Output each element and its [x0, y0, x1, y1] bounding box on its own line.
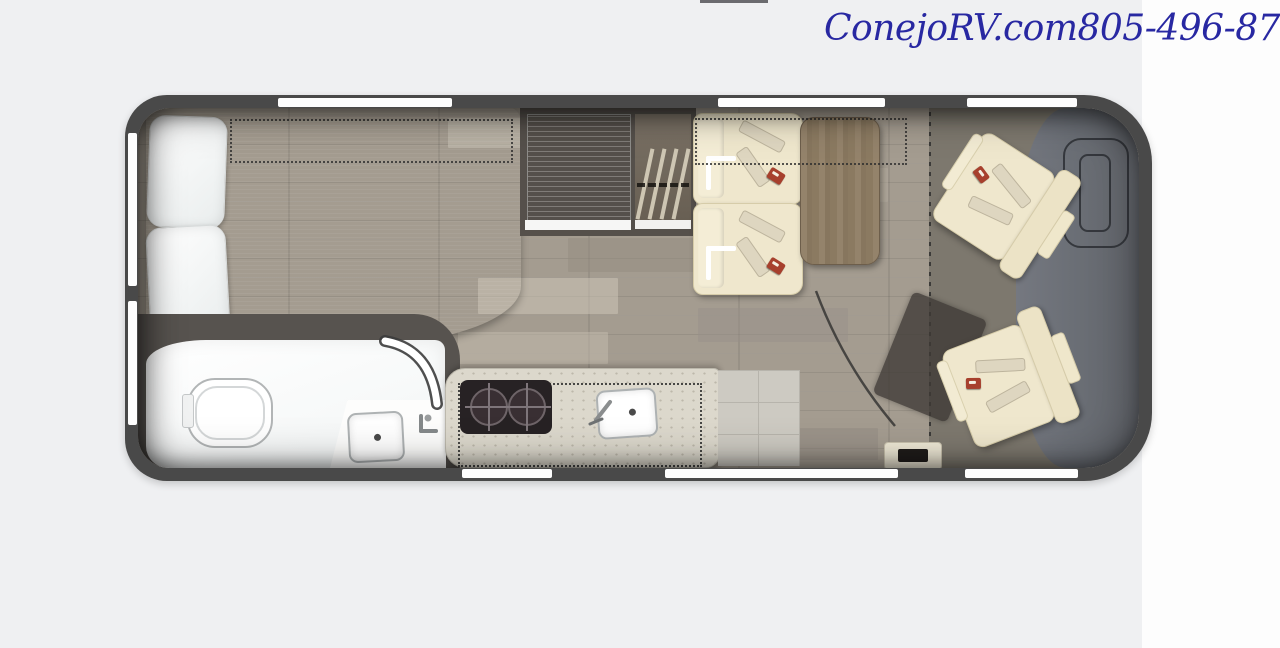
seatbelt-strap: [975, 358, 1026, 374]
wardrobe-rod: [637, 183, 689, 187]
seatbelt-buckle: [972, 165, 990, 184]
rear-door-window-lower: [128, 301, 137, 425]
window-top-rear: [278, 98, 452, 107]
sink-drain: [374, 434, 381, 441]
rear-door-window-upper: [128, 133, 137, 286]
dealer-website: ConejoRV.com: [824, 8, 1078, 49]
van-interior: [138, 108, 1139, 468]
refrigerator: [527, 114, 631, 228]
window-bottom-cab: [965, 469, 1078, 478]
page: ConejoRV.com 805-496-8700: [0, 0, 1280, 648]
seatbelt-strap: [967, 195, 1014, 226]
seatbelt-buckle: [766, 167, 786, 186]
armrest-outline: [706, 246, 711, 280]
seatbelt-buckle: [766, 257, 786, 276]
cabinet-shelf: [525, 220, 631, 230]
seatbelt-strap: [991, 162, 1033, 209]
kitchen-sink: [595, 387, 658, 440]
dinette-seat: [693, 203, 803, 295]
toilet: [187, 378, 273, 448]
floor-plank: [458, 332, 608, 364]
toilet-hinge: [182, 394, 194, 428]
cabinet-shelf: [635, 220, 691, 229]
overhead-cabinet-outline: [695, 118, 907, 165]
bed-extension-outline: [230, 119, 513, 163]
sliding-door-opening: [665, 469, 898, 478]
background-panel: [1142, 0, 1280, 648]
photo-edge-artifact: [700, 0, 768, 3]
window-top-mid: [718, 98, 885, 107]
seatbelt-strap: [735, 236, 771, 278]
floor-plank: [698, 308, 848, 342]
sink-drain: [629, 408, 636, 415]
seatbelt-buckle: [966, 378, 981, 389]
burner-icon: [508, 388, 546, 426]
seatbelt-strap: [985, 380, 1032, 414]
pillow: [146, 115, 228, 230]
van-floorplan: [125, 95, 1152, 481]
two-burner-stove: [460, 380, 552, 434]
wardrobe: [635, 114, 691, 226]
window-top-cab: [967, 98, 1077, 107]
galley-cabinet-top: [718, 370, 800, 466]
dealer-watermark: ConejoRV.com 805-496-8700: [824, 8, 1256, 49]
entry-step: [884, 442, 942, 468]
bathroom-sink: [347, 411, 406, 464]
window-bottom-galley: [462, 469, 552, 478]
toilet-lid: [195, 386, 265, 440]
entry-step-slot: [898, 449, 928, 462]
dealer-phone: 805-496-8700: [1078, 8, 1280, 49]
